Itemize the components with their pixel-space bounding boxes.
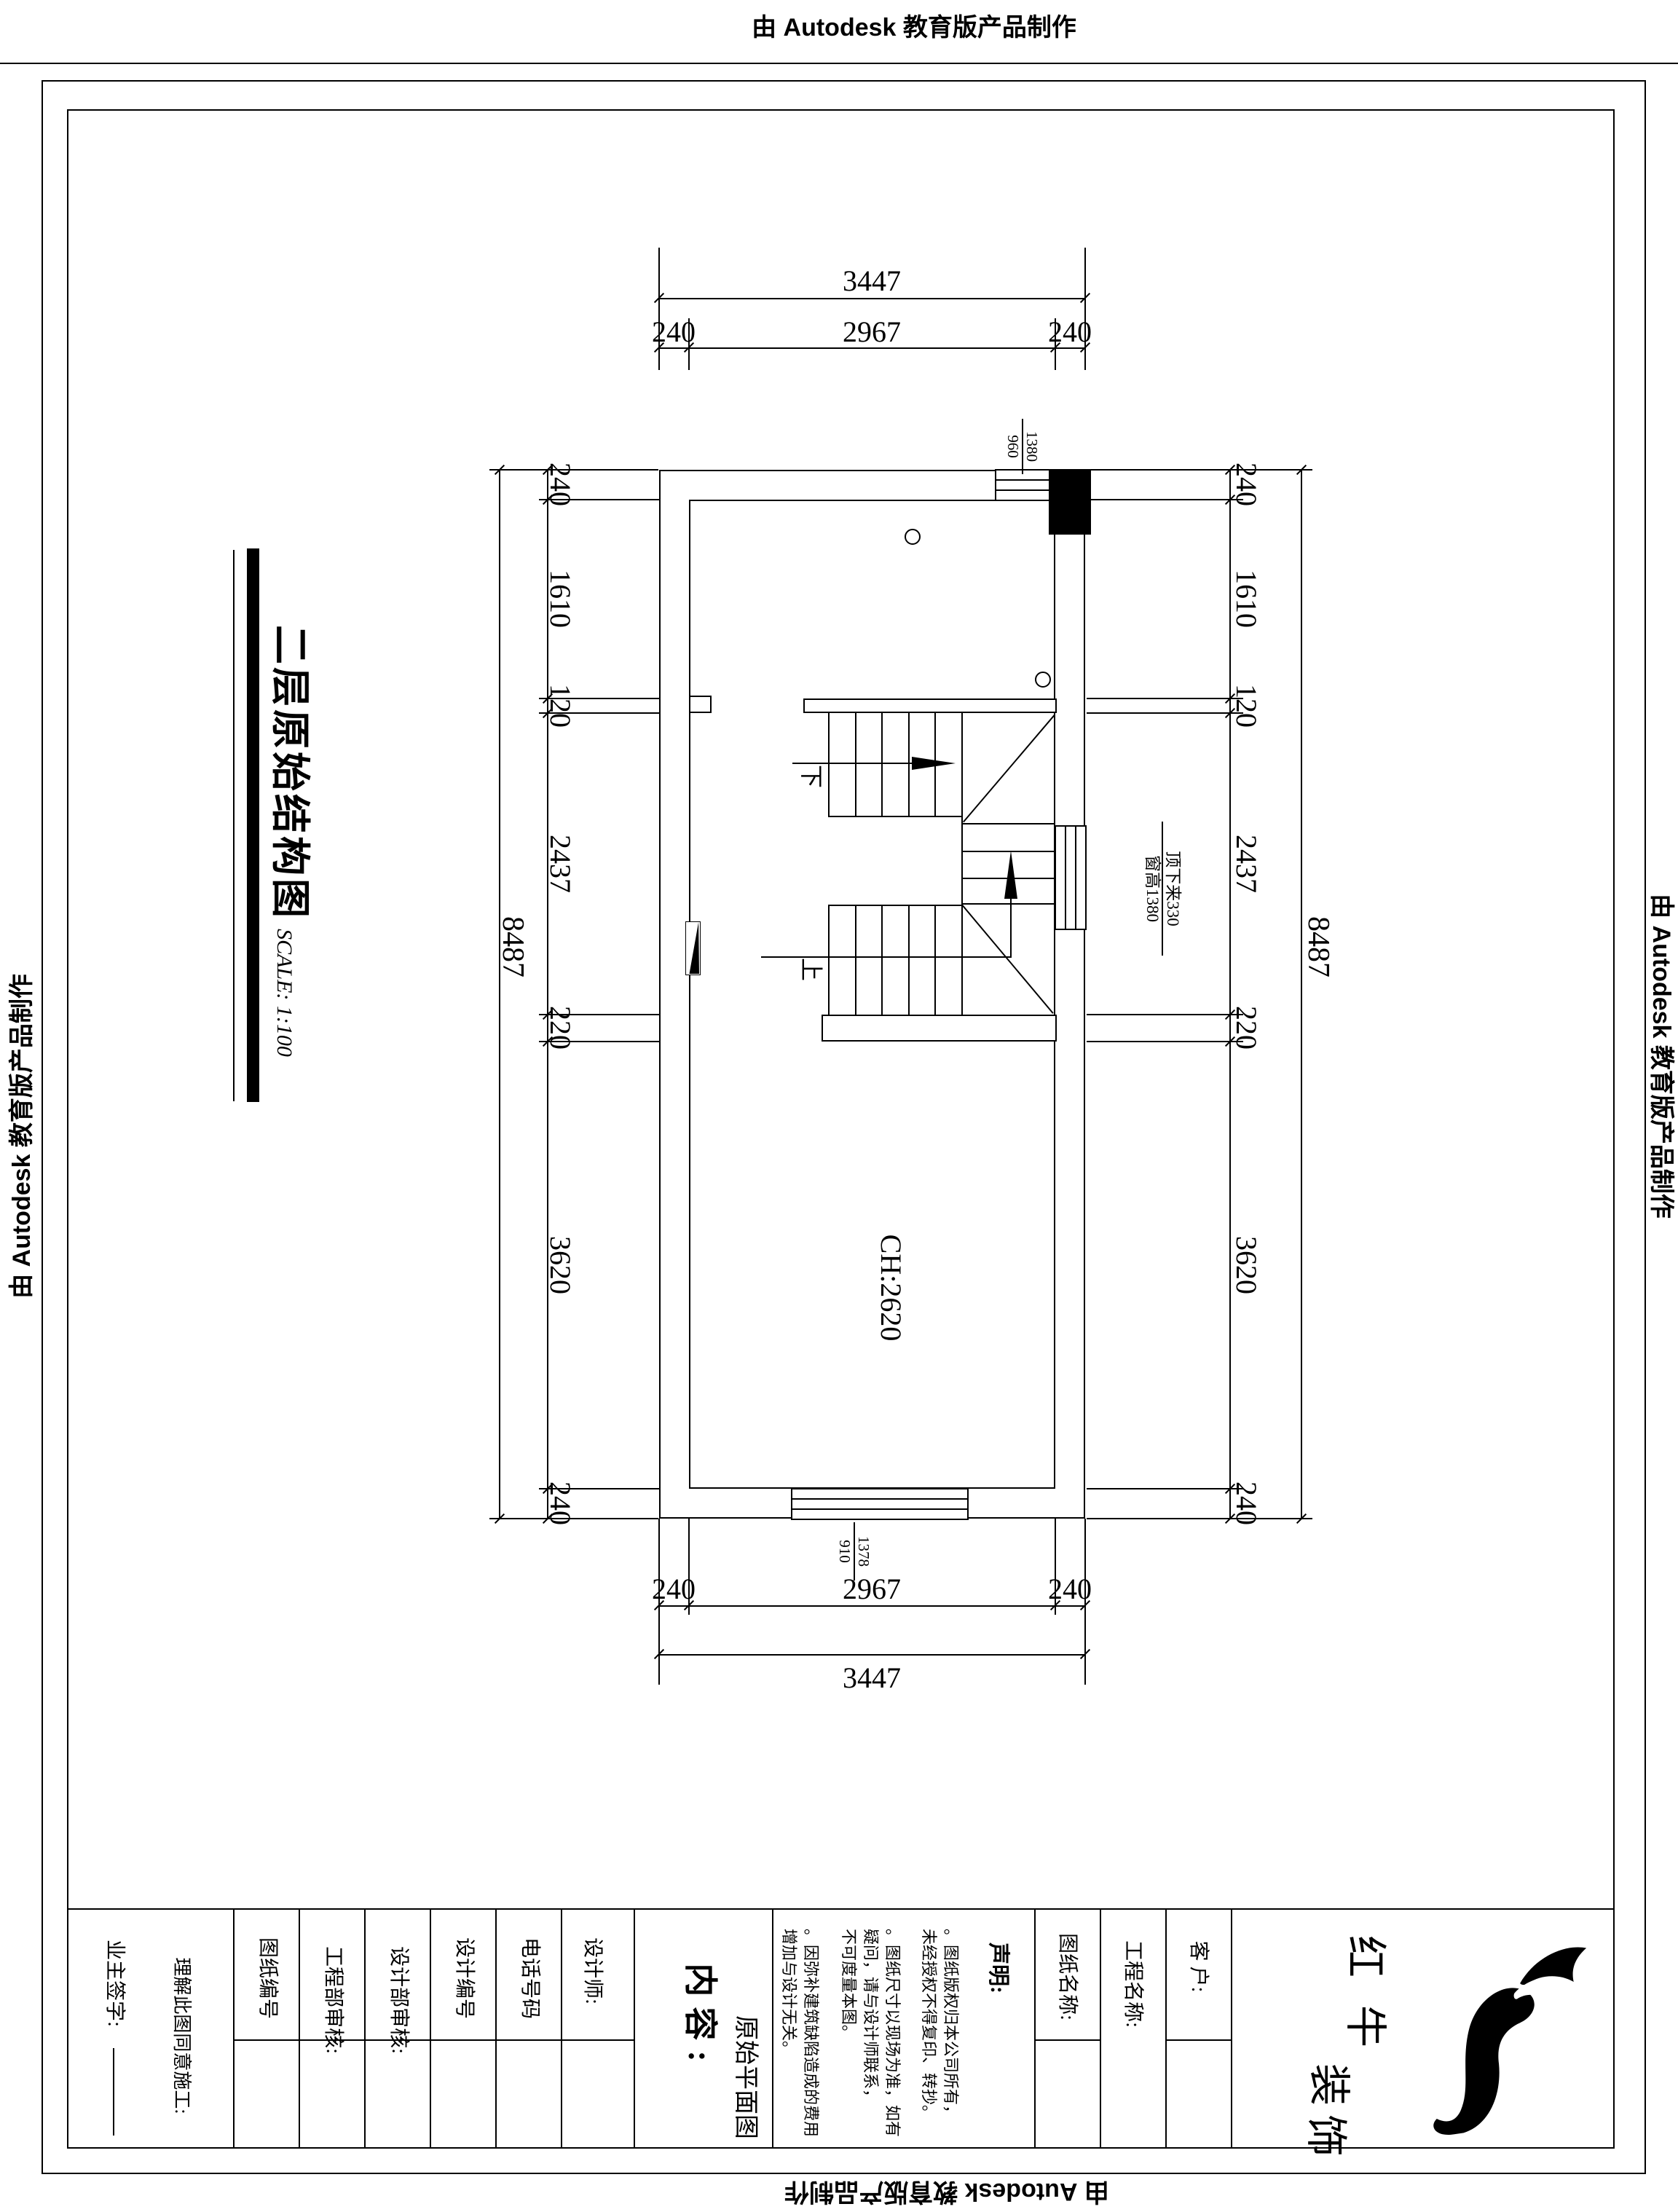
field-designer: 设计师: <box>580 1924 604 2018</box>
drawing-sheet: { "watermark": { "text": "由 Autodesk 教育版… <box>0 0 1678 2212</box>
ext-line <box>1087 469 1312 471</box>
dim-text: 2967 <box>799 1572 945 1606</box>
dim-text: 120 <box>543 648 577 764</box>
ext-line <box>658 248 660 370</box>
brand-char: 装 <box>1304 2063 1352 2106</box>
field-phone-number: 电话号码 <box>518 1924 541 2033</box>
brand-char: 牛 <box>1340 2005 1389 2047</box>
concrete-column <box>1049 469 1091 535</box>
dim-text: 240 <box>1026 315 1114 349</box>
note-item: 。图纸尺寸以现场为准，如有 疑问，请与设计师联系， 不可度量本图。 <box>838 1929 903 2147</box>
titleblock-divider <box>299 1908 300 2149</box>
window-right <box>1055 825 1087 930</box>
right-window-height: 窗高1380 <box>1142 822 1161 956</box>
dim-text: 240 <box>1229 1445 1263 1562</box>
dim-text: 1610 <box>543 540 577 657</box>
dim-text-overall: 8487 <box>495 889 530 1005</box>
watermark-bottom: 由 Autodesk 教育版产品制作 <box>510 2176 1384 2212</box>
pipe-circle <box>1035 672 1051 688</box>
content-label: 内容: <box>680 1937 719 2098</box>
top-window-sill: 960 <box>1004 419 1022 474</box>
titleblock-header-divider <box>1165 2039 1231 2041</box>
dim-text: 240 <box>630 315 717 349</box>
stair-tread <box>934 905 936 1015</box>
wall-outline-inner <box>689 500 1055 1489</box>
note-line: 未经授权不得复印、转抄。 <box>918 1929 940 2147</box>
stair-tread <box>828 905 830 1015</box>
dim-text: 2437 <box>543 806 577 922</box>
dim-text: 1610 <box>1229 540 1263 657</box>
field-design-number: 设计编号 <box>452 1924 476 2033</box>
dim-text: 240 <box>543 426 577 543</box>
signature-line <box>113 2048 114 2136</box>
dim-line <box>659 1654 1085 1656</box>
titleblock-divider <box>364 1908 366 2149</box>
stair-tread <box>828 713 830 816</box>
interior-wall-lower <box>822 1015 1057 1042</box>
titleblock-divider <box>561 1908 562 2149</box>
stair-up-line <box>1010 899 1012 958</box>
dim-text: 240 <box>630 1572 717 1606</box>
field-design-review: 设计部审核: <box>387 1924 410 2077</box>
titleblock-divider <box>772 1908 773 2149</box>
interior-wall-upper <box>803 698 1057 713</box>
note-line: 。因弥补建筑缺陷造成的费用 <box>800 1929 822 2147</box>
window-line <box>996 489 1050 491</box>
titleblock-divider <box>1165 1908 1167 2149</box>
stair-up-arrow <box>1004 851 1017 899</box>
dim-text: 220 <box>543 969 577 1086</box>
dim-text: 240 <box>543 1445 577 1562</box>
titleblock-divider <box>233 1908 235 2149</box>
dim-text: 3620 <box>543 1207 577 1323</box>
dim-text: 240 <box>1229 426 1263 543</box>
stair-tread <box>881 905 883 1015</box>
dim-line <box>659 298 1085 299</box>
stair-up-label: 上 <box>797 955 824 984</box>
titleblock-divider <box>495 1908 497 2149</box>
field-client: 客 户: <box>1186 1916 1210 2018</box>
field-engineering-review: 工程部审核: <box>321 1924 344 2077</box>
watermark-top: 由 Autodesk 教育版产品制作 <box>149 7 1678 43</box>
titleblock-divider <box>1231 1908 1232 2149</box>
stair-down-arrow <box>912 757 956 770</box>
titleblock-divider <box>430 1908 431 2149</box>
window-line <box>1065 827 1066 929</box>
ext-line <box>1087 499 1243 500</box>
titleblock-divider <box>1100 1908 1101 2149</box>
ext-line <box>1087 1518 1312 1519</box>
field-agree-construction: 理解此图同意施工: <box>170 1926 192 2145</box>
window-line <box>1085 827 1087 929</box>
ext-line <box>1087 1488 1243 1489</box>
stair-tread <box>908 713 910 816</box>
stair-tread <box>855 905 856 1015</box>
window-line <box>792 1508 967 1510</box>
content-value: 原始平面图 <box>731 2004 760 2150</box>
window-line <box>996 479 1050 481</box>
stair-tread <box>881 713 883 816</box>
wall-nib <box>689 696 712 713</box>
dim-text: 3447 <box>799 264 945 298</box>
stair-tread <box>961 903 1055 905</box>
ext-line <box>1087 1014 1243 1015</box>
dim-text: 120 <box>1229 648 1263 764</box>
note-line: 不可度量本图。 <box>838 1929 859 2147</box>
dim-text: 2437 <box>1229 806 1263 922</box>
stair-edge <box>828 905 963 906</box>
page-title-scale: SCALE: 1:100 <box>272 916 297 1069</box>
titleblock-header-divider <box>1034 2039 1100 2041</box>
brand-logo-swoosh <box>1406 1916 1595 2141</box>
dim-text: 3620 <box>1229 1207 1263 1323</box>
title-thick-bar <box>247 548 259 1102</box>
titleblock-header-divider <box>233 2039 634 2041</box>
window-bottom <box>791 1488 969 1520</box>
window-line <box>792 1488 967 1489</box>
field-drawing-number: 图纸编号 <box>256 1924 279 2033</box>
notes-title: 声明: <box>985 1928 1011 2008</box>
top-window-width: 1380 <box>1022 419 1041 474</box>
note-line: 。图纸版权归本公司所有， <box>940 1929 961 2147</box>
window-line <box>1075 827 1076 929</box>
window-line <box>996 500 1050 501</box>
dim-text: 240 <box>1026 1572 1114 1606</box>
brand-char: 红 <box>1340 1935 1389 1977</box>
field-drawing-name: 图纸名称: <box>1055 1915 1079 2039</box>
stair-edge <box>828 816 963 817</box>
watermark-right: 由 Autodesk 教育版产品制作 <box>1647 823 1675 1289</box>
stair-tread <box>855 713 856 816</box>
right-window-label: 顶下来330 窗高1380 <box>1142 822 1182 956</box>
brand-char: 饰 <box>1301 2114 1350 2157</box>
note-item: 。图纸版权归本公司所有， 未经授权不得复印、转抄。 <box>918 1929 961 2147</box>
field-owner-signature: 业主签字: <box>103 1921 126 2045</box>
ext-line <box>1087 1041 1243 1042</box>
flue-triangle <box>686 922 699 974</box>
top-window-label: 1380 960 <box>1004 419 1041 474</box>
note-item: 。因弥补建筑缺陷造成的费用 增加与设计无关。 <box>778 1929 822 2147</box>
page-title: 二层原始结构图 <box>267 625 312 916</box>
dim-text-overall: 8487 <box>1301 889 1336 1005</box>
ext-line <box>1087 712 1243 714</box>
stair-tread <box>908 905 910 1015</box>
dim-text: 220 <box>1229 969 1263 1086</box>
right-window-head: 顶下来330 <box>1162 822 1182 956</box>
titleblock-divider <box>634 1908 635 2149</box>
flue-marker <box>685 921 701 975</box>
title-thin-rule <box>233 550 235 1101</box>
window-line <box>792 1498 967 1500</box>
ext-line <box>1084 248 1086 370</box>
watermark-left: 由 Autodesk 教育版产品制作 <box>1 903 37 1369</box>
stair-down-label: 下 <box>797 762 824 791</box>
note-line: 。图纸尺寸以现场为准，如有 <box>881 1929 903 2147</box>
stair-landing-edge <box>961 823 1055 824</box>
field-project-name: 工程名称: <box>1121 1915 1144 2053</box>
window-line <box>792 1519 967 1520</box>
dim-text: 2967 <box>799 315 945 349</box>
note-line: 增加与设计无关。 <box>778 1929 800 2147</box>
pipe-circle <box>905 529 921 545</box>
ext-line <box>1087 698 1243 699</box>
stair-landing-edge <box>961 713 963 1015</box>
note-line: 疑问，请与设计师联系， <box>859 1929 881 2147</box>
top-rule <box>0 63 1678 64</box>
titleblock-divider <box>1034 1908 1036 2149</box>
dim-text: 3447 <box>799 1661 945 1695</box>
room-height-label: CH:2620 <box>874 1211 907 1364</box>
